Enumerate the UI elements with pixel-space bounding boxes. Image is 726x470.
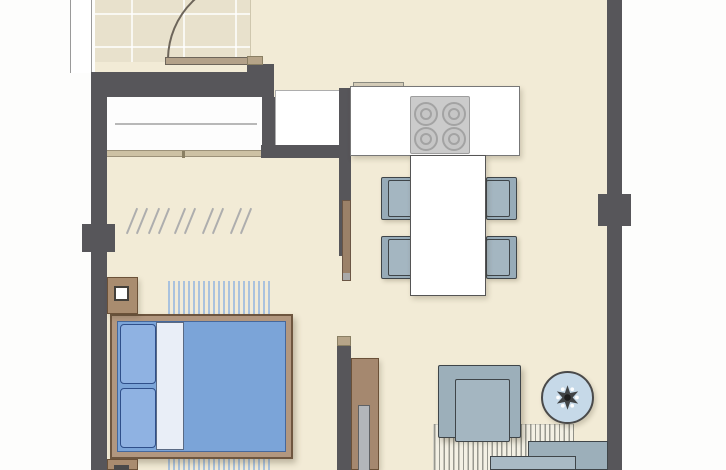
wall-left (91, 73, 107, 470)
sliding-door-divider (182, 151, 185, 158)
burner-icon (442, 127, 466, 151)
dining-chair-seat (486, 239, 510, 276)
tile-grid-line (183, 0, 185, 62)
dining-chair-seat (388, 239, 412, 276)
tile-grid-line (235, 0, 237, 62)
wall-right (607, 0, 622, 470)
kitchen-counter (350, 86, 520, 156)
door-frame-cap (247, 56, 263, 65)
burner-icon (442, 102, 466, 126)
left-pier (82, 224, 115, 252)
bathroom-window (70, 0, 92, 73)
tile-grid-line (95, 46, 250, 48)
bed-pillow (120, 388, 156, 448)
nightstand-lamp (114, 286, 129, 301)
wardrobe-interior (107, 97, 263, 150)
clothes-rail (115, 123, 257, 125)
door-end-cap (343, 273, 350, 280)
nightstand-top (107, 277, 138, 314)
floor-plan (0, 0, 726, 470)
wall-alcove-bottom (261, 145, 341, 158)
wall-top-left (91, 72, 274, 97)
armchair-seat (455, 379, 510, 442)
cooktop (410, 96, 470, 154)
tile-grid-line (95, 13, 250, 15)
dining-chair-seat (486, 180, 510, 217)
wardrobe-sliding-door (107, 150, 263, 157)
burner-icon (414, 102, 438, 126)
round-side-table (541, 371, 594, 424)
bed-pillow (120, 324, 156, 384)
nightstand-bottom (107, 459, 138, 470)
bed-sheet-band (156, 322, 184, 450)
wall-middle-lower-stub (337, 336, 351, 470)
wall-bathroom-corner (247, 64, 274, 74)
right-pier (598, 194, 631, 226)
bed-frame (110, 314, 293, 459)
tv-icon (358, 405, 370, 470)
dining-table (410, 155, 486, 296)
dining-chair-seat (388, 180, 412, 217)
tile-grid-line (131, 0, 133, 62)
wall-stub-cap (337, 336, 351, 346)
bedroom-door-leaf (342, 200, 351, 281)
bathroom-floor (95, 0, 251, 62)
burner-icon (414, 127, 438, 151)
bed-mattress (117, 321, 286, 452)
tv-sideboard (351, 358, 379, 470)
appliance-alcove (275, 90, 341, 146)
bathroom-door-leaf (165, 57, 250, 65)
star-ornament-icon (543, 373, 592, 422)
sofa-cushion (490, 456, 576, 470)
nightstand-lamp (114, 465, 129, 470)
